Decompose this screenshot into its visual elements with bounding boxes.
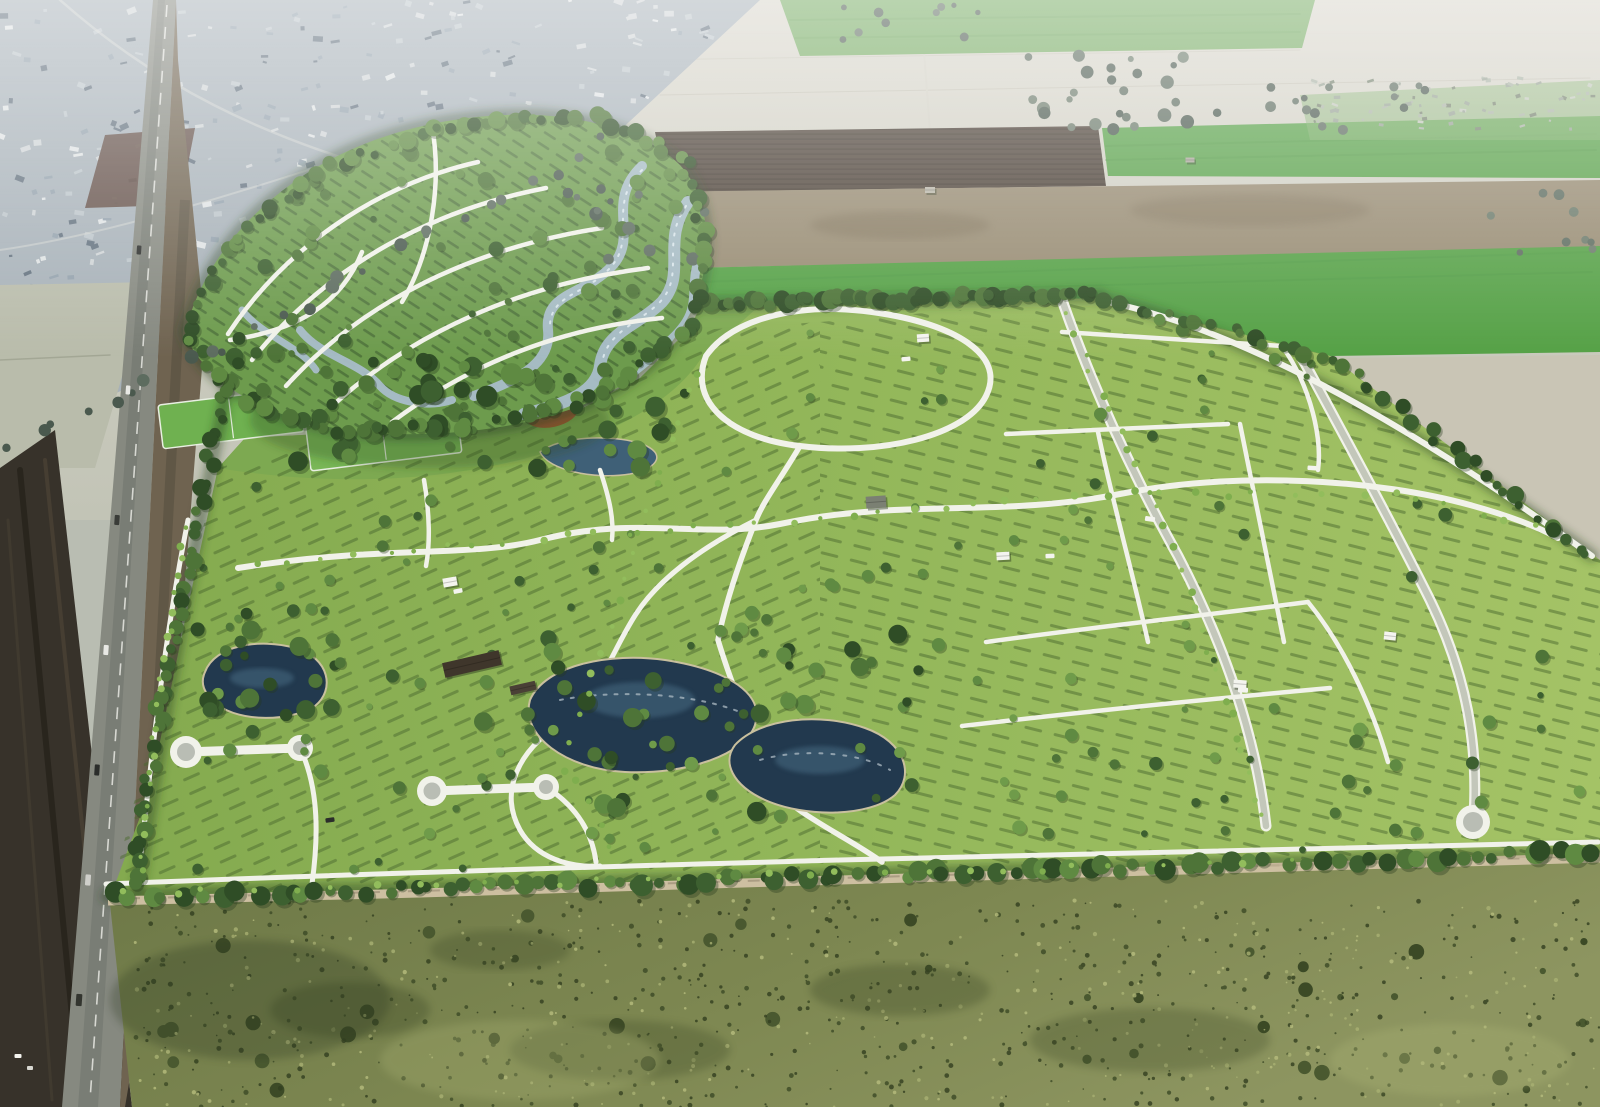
scrub-speckles-dark [805,960,809,964]
scrub-speckles-dark [643,968,648,973]
estate-singles-right [1466,756,1479,769]
scrub-speckles-dark [894,1055,897,1058]
scrub-speckles-light [1345,946,1348,949]
scrub-speckles-light [981,1012,984,1015]
scrub-speckles-dark [806,1006,810,1010]
scrub-speckles-light [1236,923,1238,925]
palm-avenue-south [1239,860,1247,868]
estate-bottom-tree-line [933,867,948,882]
scrub-speckles-dark [1377,1014,1382,1019]
scrub-speckles-dark [558,973,562,977]
scrub-speckles-dark [660,1006,665,1011]
estate-singles-right [1353,723,1367,737]
pond2-trees [587,747,601,761]
scrub-speckles-dark [540,999,544,1003]
palm-avenue-pond [686,387,692,393]
pond2-trees [659,736,675,752]
estate-singles-right [1363,786,1371,794]
scrub-speckles-dark [388,937,390,939]
scrub-speckles-dark [190,911,195,916]
scrub-speckles-dark [164,1082,168,1086]
estate-singles-left [223,743,236,756]
palm-avenue-south [927,869,932,874]
palm-avenue-south [1290,858,1294,862]
palm-avenue-main [1319,491,1325,497]
scrub-speckles-light [1364,1096,1366,1098]
scrub-speckles-dark [735,1086,738,1089]
scrub-speckles-dark [1167,946,1169,948]
highway-tree-line [172,635,181,644]
scrub-speckles-dark [1330,953,1332,955]
scrub-speckles-light [342,1103,345,1106]
scrub-speckles-dark [1134,915,1136,917]
palm-avenue-main [911,505,919,513]
scrub-speckles-dark [277,924,279,926]
scrub-speckles-light [1544,1091,1546,1093]
palm-avenue-pond [599,822,605,828]
park-strip-trees [341,448,356,463]
estate-singles-left [589,565,599,575]
scrub-speckles-dark [1260,1015,1263,1018]
scrub-speckles-light [1068,1100,1070,1102]
scrub-speckles-dark [1141,974,1144,977]
estate-singles-right [1147,431,1158,442]
scrub-speckles-dark [1262,1061,1264,1063]
scrub-speckles-dark [724,1004,729,1009]
scrub-speckles-dark [1260,1099,1264,1103]
scrub-speckles-light [1376,934,1379,937]
scrub-speckles-dark [916,915,919,918]
scrub-speckles-dark [456,1012,460,1016]
scrub-speckles-dark [1236,1002,1238,1004]
estate-singles-right [798,585,806,593]
scrub-speckles-dark [829,1088,831,1090]
highway-tree-line [196,494,212,510]
scrub-speckles-dark [570,905,574,909]
scrub-speckles-light [1330,970,1332,972]
scrub-bushes [270,1083,285,1098]
scrub-speckles-light [1274,1056,1278,1060]
palm-avenue-main [445,542,450,547]
estate-singles-left [320,606,329,615]
scrub-speckles-dark [383,958,388,963]
scrub-speckles-dark [661,977,665,981]
scrub-speckles-dark [192,1069,194,1071]
scrub-speckles-light [692,941,695,944]
scrub-speckles-dark [729,934,733,938]
scrub-speckles-light [579,929,582,932]
scrub-speckles-dark [305,938,308,941]
scrub-speckles-light [827,946,829,948]
scrub-speckles-dark [768,1020,771,1023]
scrub-speckles-dark [1510,937,1515,942]
scrub-speckles-light [747,1068,749,1070]
scrub-bushes [1391,993,1398,1000]
scrub-speckles-dark [1563,947,1567,951]
white-shed-3 [996,552,1011,563]
estate-singles-left [276,582,284,590]
scrub-speckles-light [1137,982,1139,984]
scrub-speckles-dark [1016,902,1021,907]
palm-avenue-south [417,881,424,888]
scrub-speckles-light [166,1103,169,1106]
palm-avenue-south [594,876,599,881]
palm-avenue-pond [670,436,676,442]
scrub-speckles-light [508,982,512,986]
scrub-speckles-dark [1204,984,1207,987]
scrub-speckles-dark [1578,1102,1582,1106]
pond1-trees [308,674,322,688]
scrub-speckles-dark [719,985,722,988]
pond2-trees [557,680,572,695]
scrub-speckles-dark [1574,973,1578,977]
scrub-speckles-light [581,983,585,987]
scrub-speckles-dark [1215,912,1217,914]
scrub-speckles-dark [1552,997,1555,1000]
scrub-speckles-dark [1525,1104,1528,1107]
scrub-bushes [735,919,747,931]
scrub-speckles-light [284,1096,286,1098]
palm-avenue-east [1120,428,1126,434]
scrub-speckles-dark [772,908,775,911]
pond1-trees [335,657,346,668]
scrub-speckles-dark [1124,944,1129,949]
estate-singles-left [425,494,437,506]
estate-singles-right [745,606,759,620]
scrub-speckles-light [1121,992,1124,995]
scrub-speckles-dark [1291,1062,1295,1066]
scrub-speckles-dark [771,933,775,937]
scrub-speckles-light [1088,987,1092,991]
palm-avenue-south [1161,863,1165,867]
scrub-speckles-light [557,985,561,989]
scrub-speckles-dark [1307,992,1309,994]
scrub-shade [430,930,570,970]
scrub-speckles-dark [1143,1071,1148,1076]
scrub-speckles-dark [1499,1012,1501,1014]
palm-avenue-east [1259,813,1263,817]
scrub-speckles-dark [702,964,705,967]
scrub-speckles-dark [944,1088,949,1093]
palm-avenue-main [970,500,976,506]
scrub-speckles-light [1247,951,1251,955]
scrub-speckles-dark [530,1102,534,1106]
scrub-speckles-light [1495,991,1498,994]
palm-avenue-west [139,855,143,859]
scrub-speckles-light [1470,1005,1474,1009]
scrub-speckles-dark [1134,1101,1139,1106]
scrub-speckles-light [1329,1001,1331,1003]
scrub-speckles-dark [1381,1092,1385,1096]
estate-singles-right [1056,790,1067,801]
estate-ne-tree-line [1480,470,1492,482]
scrub-speckles-dark [1333,1073,1336,1076]
scrub-speckles-dark [1589,1038,1593,1042]
highway-tree-line [166,644,175,653]
scrub-speckles-dark [875,951,879,955]
scrub-speckles-light [963,1036,966,1039]
scrub-speckles-dark [1205,938,1209,942]
scrub-speckles-dark [580,946,584,950]
park-strip-trees [631,457,650,476]
scrub-speckles-dark [1157,920,1161,924]
estate-bottom-tree-line [730,869,741,880]
palm-avenue-main [390,551,394,555]
scrub-speckles-dark [946,1059,950,1063]
scrub-speckles-dark [728,912,730,914]
highway-car [85,874,91,885]
pond1-trees [220,659,232,671]
scrub-speckles-dark [853,915,856,918]
scrub-speckles-light [1119,1074,1121,1076]
scrub-speckles-dark [321,935,323,937]
estate-bottom-tree-line [544,874,560,890]
scrub-speckles-dark [1006,971,1008,973]
palm-avenue-south [251,888,257,894]
pond2-trees [645,672,662,689]
scrub-speckles-light [439,1094,443,1098]
estate-bottom-tree-line [1362,852,1376,866]
scrub-speckles-dark [806,981,811,986]
scrub-speckles-light [1131,952,1135,956]
scrub-speckles-dark [1472,925,1476,929]
estate-bottom-tree-line [1408,851,1424,867]
scrub-speckles-dark [1088,991,1090,993]
scrub-speckles-dark [278,1086,283,1091]
scrub-speckles-dark [1587,922,1590,925]
scrub-speckles-dark [667,1100,672,1105]
scrub-bushes [1298,1061,1311,1074]
estate-ne-tree-line [1506,486,1524,504]
scrub-speckles-dark [450,903,453,906]
scrub-speckles-dark [1015,919,1019,923]
scrub-speckles-light [760,956,764,960]
estate-singles-left [586,827,598,839]
scrub-speckles-light [1570,937,1573,940]
scrub-speckles-dark [695,1020,698,1023]
scrub-speckles-light [578,915,580,917]
palm-avenue-main [1393,489,1400,496]
scrub-speckles-dark [1291,1004,1295,1008]
scrub-speckles-dark [727,1023,731,1027]
park-strip-trees [563,373,575,385]
estate-singles-right [1182,706,1188,712]
scrub-speckles-light [1323,998,1325,1000]
scrub-speckles-light [1593,1068,1595,1070]
scrub-speckles-dark [148,921,153,926]
scrub-speckles-dark [1075,913,1079,917]
palm-avenue-pond [622,577,626,581]
scrub-speckles-light [950,1043,953,1046]
scrub-speckles-dark [835,926,838,929]
palm-avenue-main [411,549,416,554]
scrub-speckles-dark [675,1080,679,1084]
estate-singles-left [366,703,372,709]
scrub-speckles-dark [1241,908,1246,913]
scrub-speckles-dark [562,913,566,917]
scrub-speckles-light [806,1032,809,1035]
scrub-speckles-dark [1224,911,1227,914]
scrub-speckles-dark [530,979,534,983]
scrub-speckles-dark [223,935,226,938]
scrub-speckles-dark [221,1089,223,1091]
estate-singles-right [954,542,962,550]
estate-ne-tree-line [1515,501,1523,509]
scrub-speckles-dark [458,920,461,923]
scrub-speckles-dark [718,911,722,915]
estate-singles-right [1574,785,1586,797]
scrub-speckles-light [1356,1009,1359,1012]
scrub-speckles-light [630,1002,634,1006]
park-strip-trees [477,455,492,470]
palm-avenue-pond [634,530,640,536]
scrub-speckles-light [1548,1084,1551,1087]
palm-avenue-east [1188,588,1196,596]
scrub-bushes [167,1056,179,1068]
scrub-speckles-dark [978,909,981,912]
pond2-trees [753,745,763,755]
scrub-speckles-light [1406,967,1409,970]
scrub-speckles-dark [1507,1093,1509,1095]
scrub-speckles-dark [637,943,642,948]
scrub-speckles-light [1206,1087,1209,1090]
scrub-speckles-light [1236,1076,1238,1078]
highway-car [76,994,83,1006]
scrub-speckles-dark [677,975,681,979]
scrub-speckles-dark [1148,1101,1153,1106]
estate-singles-right [1411,827,1423,839]
scrub-speckles-dark [1263,956,1265,958]
scrub-speckles-dark [849,941,851,943]
scrub-speckles-light [684,992,686,994]
scrub-speckles-dark [1514,918,1517,921]
scrub-speckles-dark [1395,952,1397,954]
scrub-speckles-light [1554,978,1558,982]
pond1-trees [203,702,218,717]
scrub-speckles-light [1164,900,1167,903]
scrub-speckles-light [1512,977,1515,980]
pond2-trees [607,798,626,817]
scrub-speckles-light [1389,959,1393,963]
scrub-speckles-light [365,1076,368,1079]
palm-avenue-main [791,520,798,527]
scrub-speckles-dark [1168,1073,1172,1077]
park-strip-trees [476,386,497,407]
scrub-shade [1030,1008,1270,1072]
estate-singles-right [1000,777,1009,786]
palm-avenue-west [149,735,154,740]
scrub-speckles-dark [813,906,816,909]
scrub-speckles-light [1461,907,1463,909]
palm-avenue-west [158,685,165,692]
scrub-bushes [1314,1065,1330,1081]
scrub-speckles-light [1356,935,1358,937]
estate-singles-right [1184,640,1195,651]
scrub-speckles-dark [780,995,785,1000]
scrub-speckles-dark [1085,953,1090,958]
scrub-speckles-dark [1243,1102,1248,1107]
palm-avenue-west [176,543,184,551]
estate-bottom-tree-line [470,880,483,893]
pond1-trees [325,633,339,647]
scrub-speckles-light [1590,1017,1592,1019]
estate-singles-left [192,864,203,875]
scrub-speckles-dark [875,918,878,921]
estate-singles-left [375,858,383,866]
estate-singles-right [1389,824,1401,836]
palm-avenue-main [1293,493,1298,498]
scrub-speckles-light [1451,926,1454,929]
scrub-speckles-dark [1536,1015,1541,1020]
scrub-speckles-light [1016,989,1020,993]
pond2-trees [714,683,724,693]
scrub-speckles-dark [383,952,387,956]
palm-avenue-east [1155,504,1159,508]
estate-singles-right [1239,529,1250,540]
estate-singles-right [759,649,767,657]
scrub-speckles-light [889,939,892,942]
scrub-speckles-dark [1533,1003,1536,1006]
palm-avenue-south [646,877,651,882]
scrub-speckles-dark [1045,1064,1047,1066]
palm-avenue-east [1223,698,1230,705]
estate-singles-right [1475,796,1488,809]
palm-avenue-south [1000,869,1006,875]
scrub-speckles-dark [919,1066,922,1069]
scrub-speckles-dark [999,1008,1004,1013]
scrub-speckles-light [876,1080,880,1084]
scrub-speckles-light [1183,927,1186,930]
park-strip-trees [320,366,332,378]
palm-avenue-main [500,542,505,547]
scrub-speckles-dark [1416,899,1421,904]
scrub-speckles-light [1541,1095,1544,1098]
scrub-speckles-dark [1033,981,1035,983]
scrub-speckles-light [139,1079,142,1082]
scrub-speckles-dark [1021,932,1025,936]
scrub-speckles-light [1234,933,1237,936]
scrub-speckles-dark [1424,1011,1426,1013]
scrub-speckles-dark [187,934,189,936]
park-strip-trees [645,397,665,417]
scrub-speckles-light [1330,1013,1333,1016]
scrub-speckles-dark [1266,928,1269,931]
estate-singles-right [712,828,718,834]
white-shed-5 [1383,631,1397,642]
scrub-speckles-dark [1581,930,1583,932]
scrub-speckles-light [641,1009,644,1012]
palm-avenue-west [175,572,182,579]
scrub-speckles-dark [1050,1080,1052,1082]
scrub-speckles-dark [477,1012,479,1014]
scrub-bushes [1084,994,1091,1001]
scrub-speckles-light [1319,969,1321,971]
scrub-speckles-light [1505,982,1508,985]
palm-avenue-main [254,561,261,568]
palm-avenue-main [565,530,572,537]
palm-avenue-west [164,633,172,641]
fan-ring-trees [200,360,212,372]
scrub-speckles-light [1268,1057,1270,1059]
park-strip-trees [445,441,455,451]
scrub-speckles-light [601,1103,603,1105]
scrub-speckles-dark [1334,1032,1336,1034]
scrub-speckles-dark [637,899,641,903]
estate-ne-tree-line [1493,481,1502,490]
estate-singles-left [687,642,695,650]
estate-bottom-tree-line [358,887,374,903]
fan-ring-trees [372,422,383,433]
